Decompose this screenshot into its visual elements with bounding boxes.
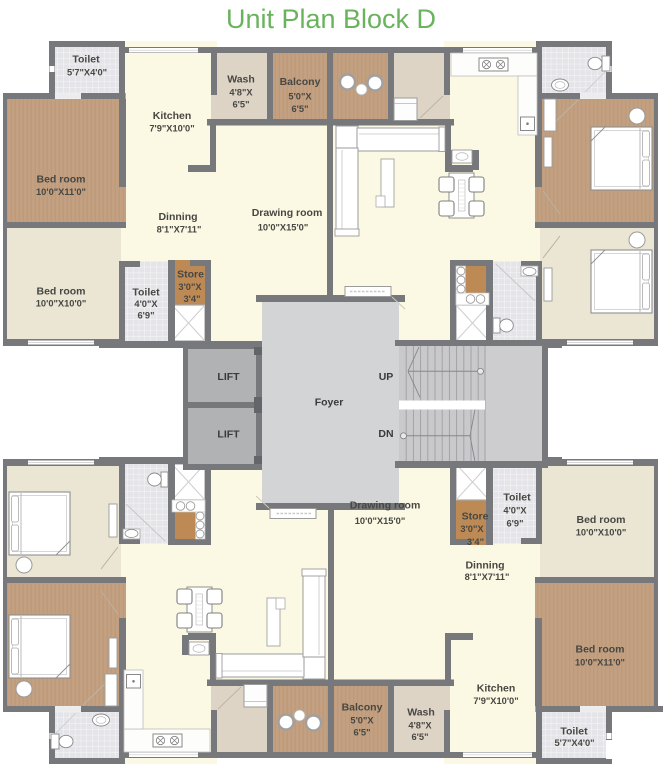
svg-text:Store: Store: [462, 511, 489, 523]
svg-text:4'8"X: 4'8"X: [408, 721, 432, 731]
svg-text:6'9": 6'9": [507, 519, 524, 529]
svg-text:4'8"X: 4'8"X: [229, 88, 253, 98]
svg-text:10'0"X15'0": 10'0"X15'0": [258, 223, 308, 233]
svg-text:10'0"X15'0": 10'0"X15'0": [355, 516, 405, 526]
svg-text:3'4": 3'4": [467, 537, 484, 547]
svg-text:6'5": 6'5": [354, 728, 371, 738]
svg-text:7'9"X10'0": 7'9"X10'0": [473, 696, 518, 706]
svg-text:3'0"X: 3'0"X: [460, 524, 484, 534]
svg-text:Foyer: Foyer: [315, 397, 344, 409]
svg-text:4'0"X: 4'0"X: [134, 299, 158, 309]
svg-text:Bed room: Bed room: [36, 286, 85, 298]
svg-text:8'1"X7'11": 8'1"X7'11": [465, 572, 510, 582]
svg-text:3'0"X: 3'0"X: [178, 282, 202, 292]
svg-text:10'0"X10'0": 10'0"X10'0": [36, 299, 86, 309]
svg-text:Wash: Wash: [227, 74, 255, 86]
svg-text:LIFT: LIFT: [217, 371, 240, 383]
svg-text:Balcony: Balcony: [342, 702, 383, 714]
svg-text:Drawing room: Drawing room: [350, 500, 421, 512]
svg-text:6'9": 6'9": [138, 311, 155, 321]
svg-text:Wash: Wash: [407, 707, 435, 719]
svg-text:6'5": 6'5": [233, 100, 250, 110]
svg-text:Bed room: Bed room: [575, 644, 624, 656]
svg-text:3'4": 3'4": [184, 294, 201, 304]
svg-text:Toilet: Toilet: [503, 492, 531, 504]
svg-text:5'7"X4'0": 5'7"X4'0": [67, 68, 107, 78]
svg-text:10'0"X11'0": 10'0"X11'0": [36, 187, 86, 197]
svg-text:4'0"X: 4'0"X: [503, 506, 527, 516]
svg-text:6'5": 6'5": [292, 104, 309, 114]
svg-text:Toilet: Toilet: [132, 287, 160, 299]
svg-text:LIFT: LIFT: [217, 429, 240, 441]
svg-text:7'9"X10'0": 7'9"X10'0": [149, 124, 194, 134]
svg-text:Dinning: Dinning: [465, 560, 504, 572]
svg-text:Store: Store: [177, 269, 204, 281]
svg-text:Toilet: Toilet: [560, 726, 588, 738]
svg-text:Dinning: Dinning: [158, 211, 197, 223]
svg-text:6'5": 6'5": [412, 732, 429, 742]
svg-text:Unit Plan Block D: Unit Plan Block D: [226, 4, 436, 34]
svg-text:DN: DN: [378, 428, 393, 440]
svg-text:10'0"X11'0": 10'0"X11'0": [575, 658, 625, 668]
svg-text:UP: UP: [379, 371, 394, 383]
svg-text:Balcony: Balcony: [280, 76, 321, 88]
svg-text:Drawing room: Drawing room: [252, 207, 323, 219]
svg-text:Toilet: Toilet: [72, 54, 100, 66]
svg-text:5'7"X4'0": 5'7"X4'0": [554, 738, 594, 748]
svg-text:10'0"X10'0": 10'0"X10'0": [576, 528, 626, 538]
svg-text:Kitchen: Kitchen: [153, 110, 192, 122]
svg-text:Kitchen: Kitchen: [477, 683, 516, 695]
svg-text:8'1"X7'11": 8'1"X7'11": [157, 225, 202, 235]
svg-text:5'0"X: 5'0"X: [288, 92, 312, 102]
svg-text:5'0"X: 5'0"X: [350, 716, 374, 726]
svg-text:Bed room: Bed room: [36, 174, 85, 186]
svg-text:Bed room: Bed room: [576, 514, 625, 526]
